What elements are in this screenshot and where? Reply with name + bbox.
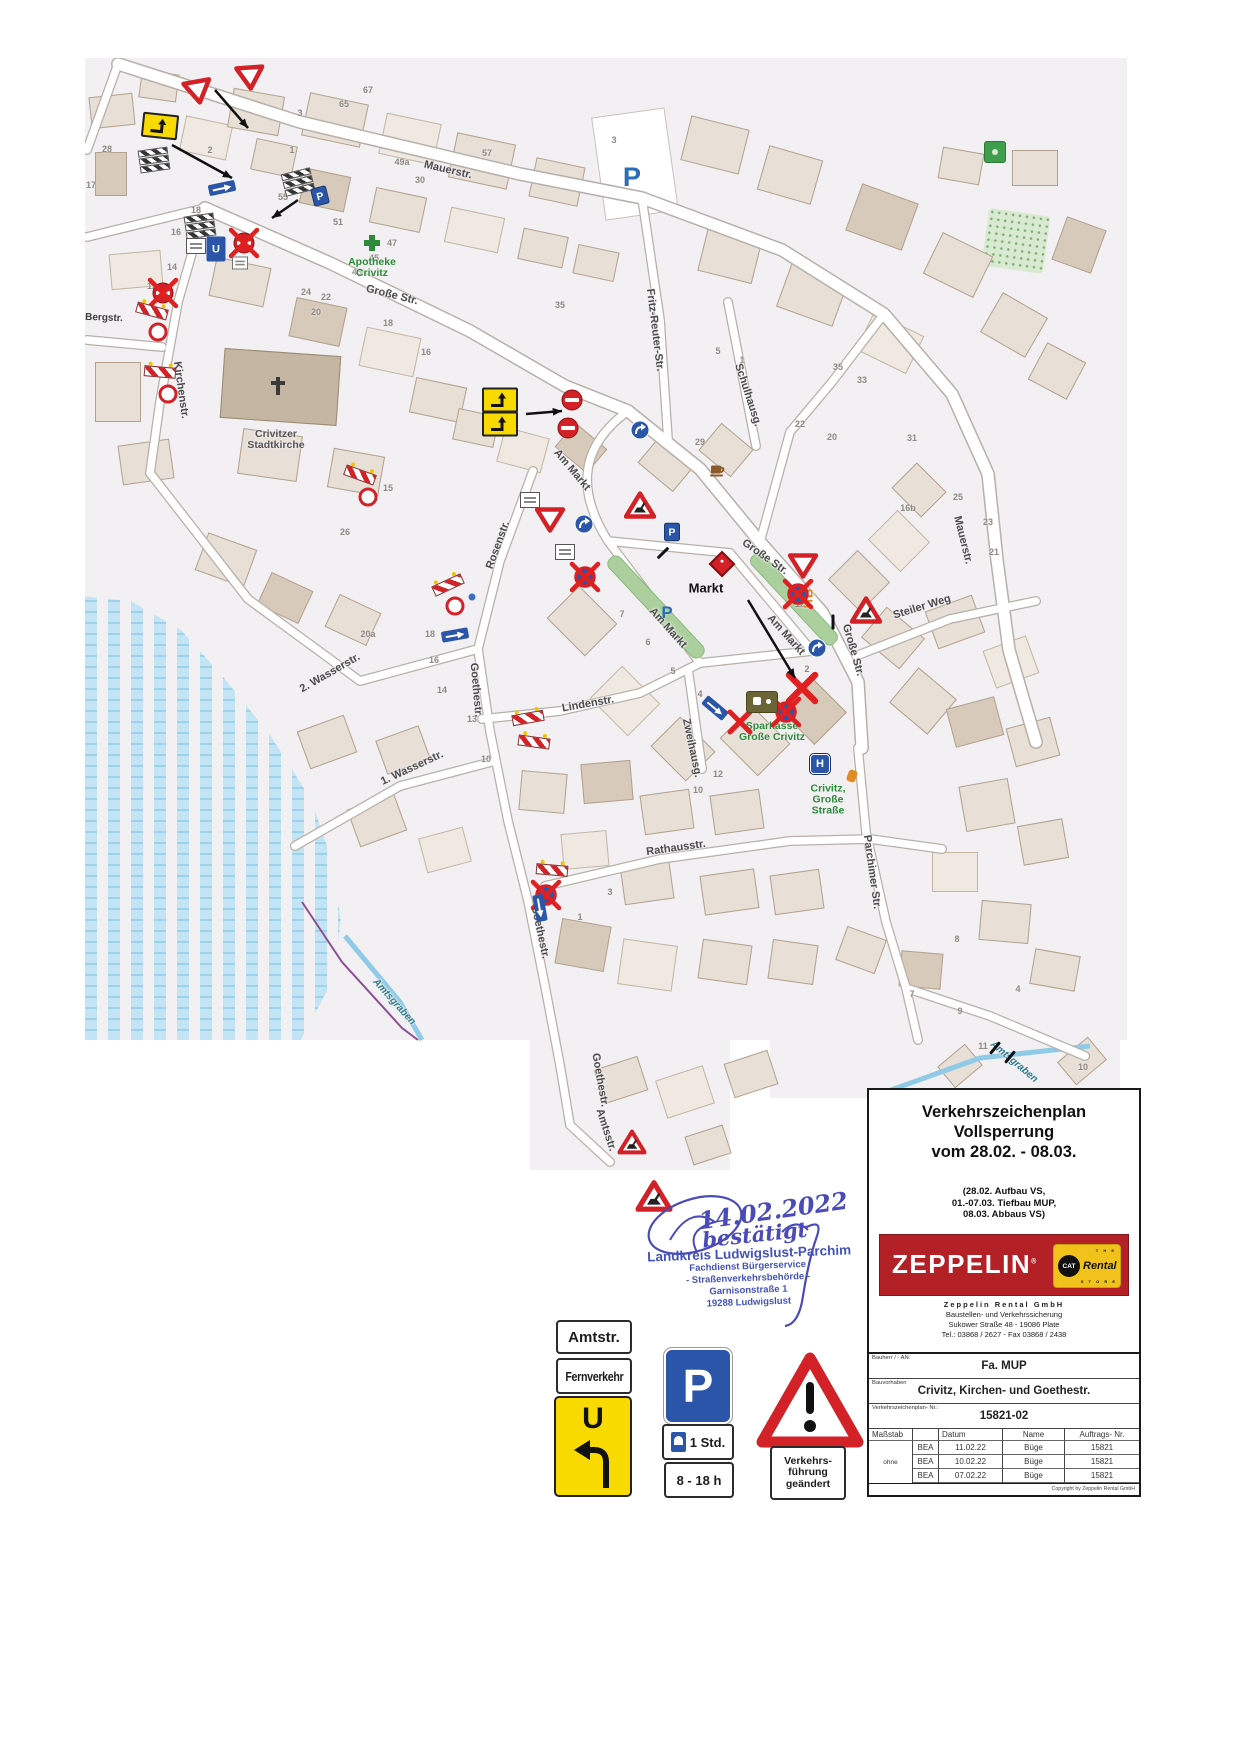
company-address: Zeppelin Rental GmbH Baustellen- und Ver… — [869, 1300, 1139, 1340]
field-value: Crivitz, Kirchen- und Goethestr. — [869, 1385, 1139, 1397]
house-number: 1 — [577, 912, 582, 922]
orange-marker-icon — [848, 770, 857, 782]
no-entry-sign-icon — [233, 232, 255, 254]
detour-u-sign-icon: U — [207, 237, 226, 262]
house-number: 10 — [1078, 1062, 1088, 1072]
no-stopping-sign-icon — [574, 566, 596, 588]
house-number: 21 — [989, 547, 999, 557]
house-number: 20 — [311, 307, 321, 317]
house-number: 49a — [394, 157, 409, 167]
parking-sign-letter: P — [683, 1359, 714, 1413]
house-number: 7 — [619, 609, 624, 619]
regulatory-circle-icon — [149, 323, 168, 342]
house-number: 18 — [383, 318, 393, 328]
plan-title: Verkehrszeichenplan Vollsperrung vom 28.… — [869, 1102, 1139, 1162]
no-entry-sign-icon — [152, 282, 174, 304]
sig-cell: BEA — [913, 1469, 939, 1483]
house-number: 8 — [954, 934, 959, 944]
fernverkehr-sign-label: Fernverkehr — [565, 1369, 623, 1384]
house-number: 4 — [1015, 984, 1020, 994]
plan-title-line: Vollsperrung — [869, 1122, 1139, 1142]
detour-sign-icon — [482, 412, 518, 437]
scanned-page: Mauerstr.Große Str.Große Str.Große Str.M… — [0, 0, 1240, 1754]
house-number: 6 — [645, 637, 650, 647]
plan-subtitle-line: (28.02. Aufbau VS, — [869, 1186, 1139, 1198]
order-cell: 15821 — [1065, 1455, 1139, 1469]
house-number: 22 — [321, 292, 331, 302]
company-line: Zeppelin Rental GmbH — [869, 1300, 1139, 1310]
sparkasse-logo-icon — [746, 691, 778, 713]
parking-disc-icon — [671, 1432, 686, 1452]
detour-sign-icon — [482, 388, 518, 413]
house-number: 16 — [421, 347, 431, 357]
name-cell: Büge — [1003, 1469, 1065, 1483]
name-cell: Büge — [1003, 1441, 1065, 1455]
house-number: 67 — [363, 85, 373, 95]
warning-triangle-sign — [756, 1352, 864, 1448]
house-number: 22 — [795, 419, 805, 429]
sig-cell: BEA — [913, 1441, 939, 1455]
annotation-arrow — [264, 192, 306, 226]
date-cell: 10.02.22 — [939, 1455, 1003, 1469]
house-number: 11 — [978, 1041, 988, 1051]
parking-duration-label: 1 Std. — [690, 1435, 725, 1450]
house-number: 23 — [983, 517, 993, 527]
no-stopping-sign-icon — [775, 701, 797, 723]
table-header: Datum — [939, 1428, 1003, 1441]
info-plate-icon — [186, 238, 206, 254]
regulatory-circle-icon — [159, 385, 178, 404]
plan-fields: Bauherr / - AN: Fa. MUP Bauvorhaben Criv… — [869, 1352, 1139, 1495]
info-plate-icon — [232, 257, 248, 270]
street-label: Bergstr. — [85, 312, 123, 324]
sig-cell: BEA — [913, 1455, 939, 1469]
verkehrsfuehrung-plate: Verkehrs- führung geändert — [770, 1446, 846, 1500]
house-number: 31 — [907, 433, 917, 443]
plan-subtitle: (28.02. Aufbau VS, 01.-07.03. Tiefbau MU… — [869, 1186, 1139, 1221]
house-number: 5 — [715, 346, 720, 356]
parking-hours-plate: 8 - 18 h — [664, 1462, 734, 1498]
field-row-bauvorhaben: Bauvorhaben Crivitz, Kirchen- und Goethe… — [869, 1379, 1139, 1404]
house-number: 4 — [697, 689, 702, 699]
house-number: 9 — [957, 1006, 962, 1016]
name-cell: Büge — [1003, 1455, 1065, 1469]
plan-subtitle-line: 01.-07.03. Tiefbau MUP, — [869, 1198, 1139, 1210]
house-number: 65 — [339, 99, 349, 109]
cat-store-bottom-label: S T O R E — [1081, 1279, 1117, 1284]
road-tick-icon — [832, 615, 835, 630]
house-number: 7 — [909, 989, 914, 999]
poi-label: ApothekeCrivitz — [348, 257, 396, 279]
house-number: 35 — [833, 362, 843, 372]
scale-value: ohne — [869, 1441, 913, 1483]
house-number: 3 — [297, 108, 302, 118]
company-line: Sukower Straße 48 - 19086 Plate — [869, 1320, 1139, 1330]
field-row-bauherr: Bauherr / - AN: Fa. MUP — [869, 1354, 1139, 1379]
house-number: 16 — [171, 227, 181, 237]
pharmacy-cross-icon — [364, 235, 380, 251]
cat-store-top-label: T H E — [1096, 1248, 1116, 1253]
regulatory-circle-icon — [446, 597, 465, 616]
house-number: 25 — [953, 492, 963, 502]
house-number: 24 — [301, 287, 311, 297]
roadworks-warning-icon — [624, 491, 656, 520]
zeppelin-wordmark: ZEPPELIN® — [892, 1249, 1038, 1280]
detour-uturn-sign: U — [554, 1396, 632, 1497]
house-number: 16b — [900, 503, 916, 513]
info-plate-icon — [555, 544, 575, 560]
plan-info-box: Verkehrszeichenplan Vollsperrung vom 28.… — [867, 1088, 1141, 1497]
amtstr-sign-label: Amtstr. — [568, 1329, 620, 1346]
house-number: 14 — [167, 262, 177, 272]
revision-table: MaßstabDatumNameAuftrags- Nr.ohneBEA11.0… — [869, 1428, 1139, 1483]
house-number: 12 — [713, 769, 723, 779]
annotation-arrow — [164, 137, 240, 186]
roadworks-warning-icon — [850, 596, 882, 625]
parking-letter-icon: P — [623, 162, 641, 194]
yield-sign-icon — [535, 507, 565, 534]
table-header: Name — [1003, 1428, 1065, 1441]
field-row-plan-nr: Verkehrszeichenplan- Nr.: 15821-02 — [869, 1404, 1139, 1429]
plan-subtitle-line: 08.03. Abbaus VS) — [869, 1209, 1139, 1221]
authority-stamp: Landkreis Ludwigslust-Parchim Fachdienst… — [647, 1243, 849, 1313]
zeppelin-banner: ZEPPELIN® CAT Rental T H E S T O R E — [879, 1234, 1129, 1296]
table-header: Maßstab — [869, 1428, 913, 1441]
field-value: Fa. MUP — [869, 1360, 1139, 1372]
annotation-arrow — [518, 403, 570, 422]
mandatory-direction-icon — [574, 514, 594, 534]
house-number: 1 — [289, 145, 294, 155]
bus-stop-icon: H — [810, 754, 830, 774]
cat-rental-store-logo: CAT Rental T H E S T O R E — [1053, 1244, 1121, 1288]
house-number: 18 — [425, 629, 435, 639]
copyright-note: Copyright by Zeppelin Rental GmbH — [869, 1483, 1139, 1495]
blue-dot-icon — [469, 594, 476, 601]
house-number: 20 — [827, 432, 837, 442]
house-number: 14 — [437, 685, 447, 695]
table-header: Auftrags- Nr. — [1065, 1428, 1139, 1441]
parking-duration-plate: 1 Std. — [662, 1424, 734, 1460]
house-number: 3 — [611, 135, 616, 145]
parking-disc-dial — [674, 1436, 683, 1445]
parking-sign-icon: P — [664, 523, 680, 541]
house-number: 5 — [670, 666, 675, 676]
annotation-arrow — [740, 592, 803, 686]
house-number: 35 — [555, 300, 565, 310]
house-number: 26 — [340, 527, 350, 537]
poi-label: Crivitz,GroßeStraße — [810, 784, 845, 817]
house-number: 28 — [102, 144, 112, 154]
house-number: 3 — [607, 887, 612, 897]
parking-sign: P — [664, 1348, 732, 1424]
house-number: 29 — [695, 437, 705, 447]
annotation-arrow — [207, 82, 256, 136]
fernverkehr-sign: Fernverkehr — [556, 1358, 632, 1394]
plan-title-line: vom 28.02. - 08.03. — [869, 1142, 1139, 1162]
cancellation-x-icon — [568, 560, 602, 594]
parking-letter-icon: P — [661, 603, 672, 623]
house-number: 10 — [693, 785, 703, 795]
cat-logo-icon: CAT — [1058, 1255, 1080, 1277]
verkehrsfuehrung-line: geändert — [786, 1479, 830, 1491]
church-cross-icon — [271, 377, 285, 395]
order-cell: 15821 — [1065, 1441, 1139, 1455]
mandatory-direction-icon — [807, 638, 827, 658]
regulatory-circle-icon — [359, 488, 378, 507]
poi-label: Markt — [689, 583, 724, 594]
registered-mark: ® — [1031, 1258, 1038, 1265]
house-number: 15 — [383, 483, 393, 493]
yield-sign-icon — [788, 553, 818, 580]
green-area-sign-icon — [984, 141, 1006, 163]
house-number: 10 — [481, 754, 491, 764]
cat-rental-label: Rental — [1083, 1260, 1117, 1272]
roadworks-warning-icon — [618, 1129, 647, 1155]
date-cell: 07.02.22 — [939, 1469, 1003, 1483]
house-number: 51 — [333, 217, 343, 227]
house-number: 57 — [482, 148, 492, 158]
house-number: 30 — [415, 175, 425, 185]
house-number: 16 — [429, 655, 439, 665]
company-line: Tel.: 03868 / 2627 - Fax 03868 / 2438 — [869, 1330, 1139, 1340]
house-number: 17 — [86, 180, 96, 190]
markt-pin-icon — [713, 555, 732, 574]
date-cell: 11.02.22 — [939, 1441, 1003, 1455]
poi-label: CrivitzerStadtkirche — [247, 429, 304, 451]
plan-title-line: Verkehrszeichenplan — [869, 1102, 1139, 1122]
cafe-icon — [709, 463, 727, 478]
table-header — [913, 1428, 939, 1441]
parking-hours-label: 8 - 18 h — [677, 1473, 722, 1488]
house-number: 47 — [387, 238, 397, 248]
mandatory-direction-icon — [630, 420, 650, 440]
uturn-letter: U — [556, 1402, 630, 1436]
house-number: 33 — [857, 375, 867, 385]
cancellation-x-icon — [227, 226, 261, 260]
house-number: 20a — [360, 629, 375, 639]
company-line: Baustellen- und Verkehrssicherung — [869, 1310, 1139, 1320]
order-cell: 15821 — [1065, 1469, 1139, 1483]
uturn-arrow-icon — [568, 1438, 618, 1490]
field-value: 15821-02 — [869, 1410, 1139, 1422]
